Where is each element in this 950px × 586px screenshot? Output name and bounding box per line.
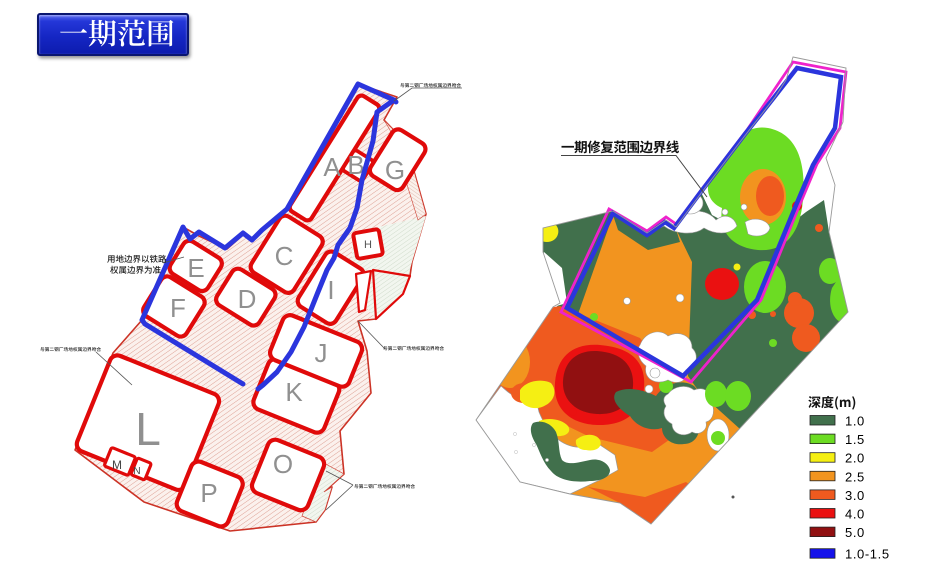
svg-text:G: G	[385, 155, 405, 185]
svg-text:1.0-1.5: 1.0-1.5	[845, 547, 890, 562]
svg-text:N: N	[133, 466, 140, 477]
svg-text:3.0: 3.0	[845, 488, 865, 503]
svg-text:H: H	[364, 239, 372, 251]
svg-text:J: J	[315, 338, 328, 368]
svg-text:C: C	[275, 241, 294, 271]
svg-text:M: M	[112, 458, 122, 472]
svg-text:L: L	[135, 403, 161, 455]
svg-text:2.5: 2.5	[845, 469, 865, 484]
svg-text:4.0: 4.0	[845, 507, 865, 522]
svg-text:F: F	[170, 293, 186, 323]
svg-text:1.0: 1.0	[845, 414, 865, 429]
svg-text:I: I	[327, 275, 334, 305]
svg-text:O: O	[273, 449, 293, 479]
svg-text:2.0: 2.0	[845, 451, 865, 466]
svg-text:D: D	[238, 284, 257, 314]
svg-text:P: P	[200, 478, 217, 508]
svg-text:5.0: 5.0	[845, 525, 865, 540]
svg-text:K: K	[285, 377, 303, 407]
svg-text:E: E	[187, 253, 204, 283]
svg-text:A: A	[323, 152, 341, 182]
svg-text:1.5: 1.5	[845, 432, 865, 447]
